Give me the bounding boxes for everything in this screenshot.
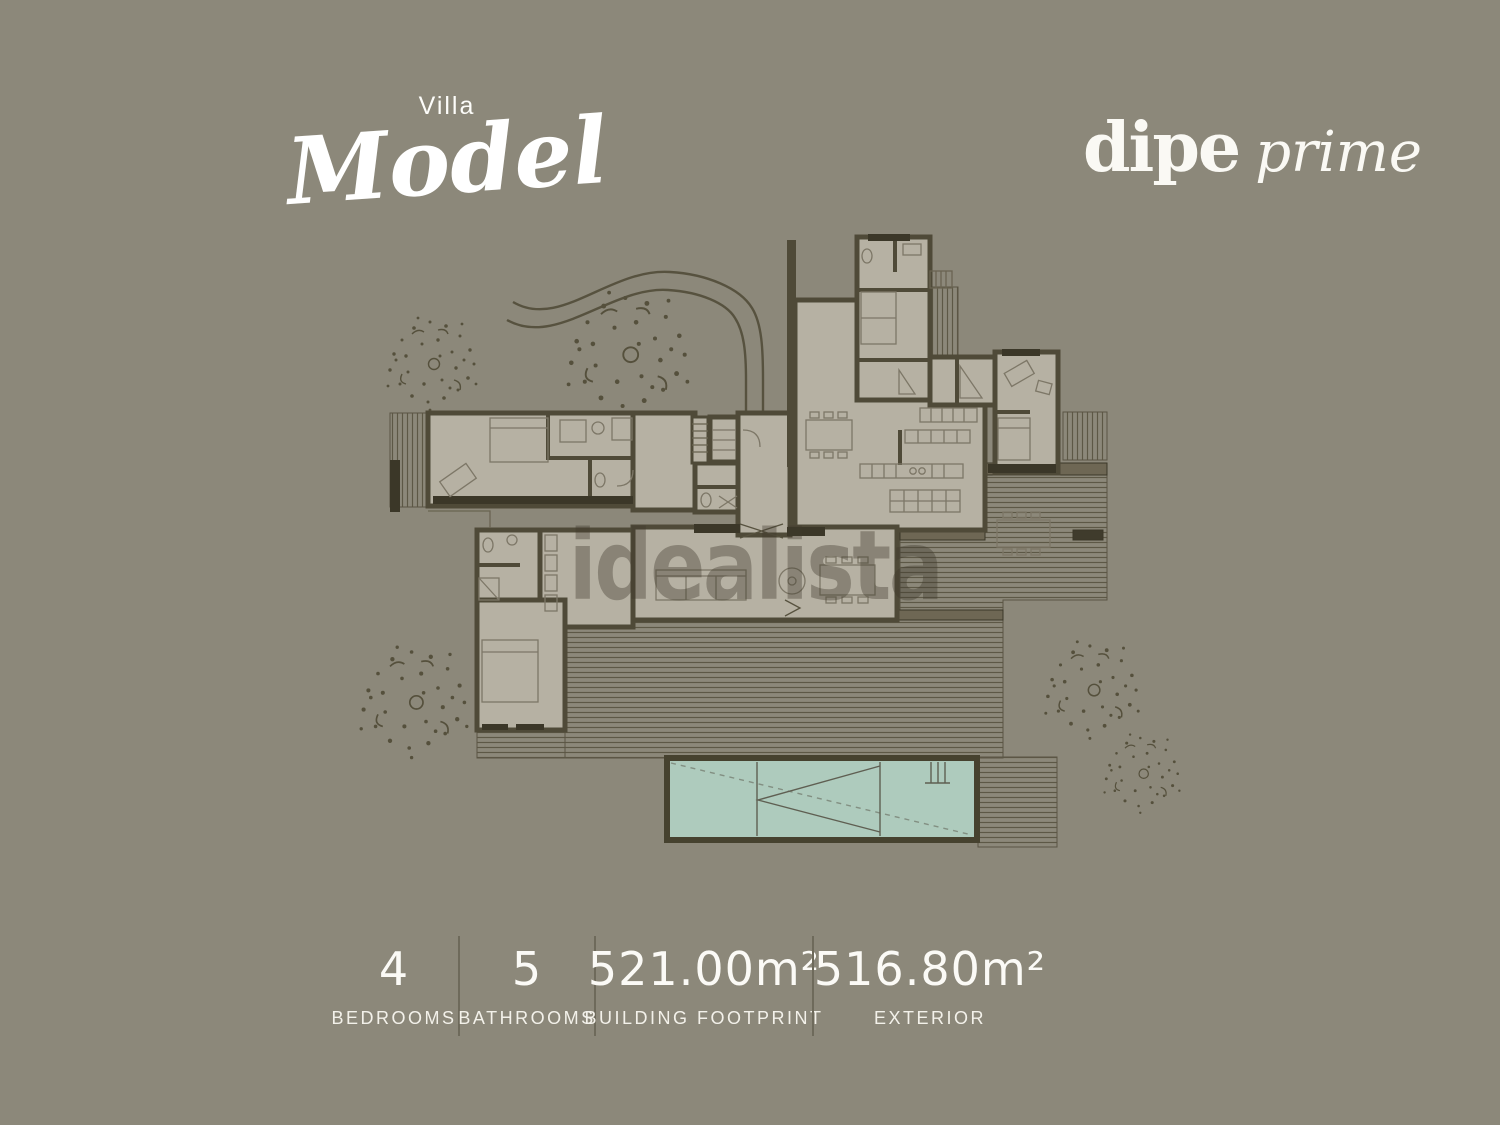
tree-icon: [387, 317, 478, 412]
brand-name: dipe: [1083, 108, 1239, 188]
room-bedroom-2: [477, 600, 565, 730]
bathrooms-value: 5: [512, 942, 542, 996]
stats-bar: 4 BEDROOMS 5 BATHROOMS 521.00m² BUILDING…: [330, 936, 1046, 1036]
room-hall: [633, 413, 695, 510]
villa-title-name: Model: [284, 104, 611, 218]
spine-wall: [787, 240, 796, 467]
stat-exterior: 516.80m² EXTERIOR: [812, 936, 1046, 1036]
brand-suffix: prime: [1255, 120, 1422, 185]
room-living: [633, 527, 897, 620]
footprint-value: 521.00m²: [588, 942, 820, 996]
exterior-label: EXTERIOR: [874, 1008, 986, 1029]
footprint-label: BUILDING FOOTPRINT: [585, 1008, 824, 1029]
stat-bathrooms: 5 BATHROOMS: [458, 936, 594, 1036]
bathrooms-label: BATHROOMS: [458, 1008, 595, 1029]
room-entry: [738, 413, 790, 535]
tree-icon: [360, 646, 469, 760]
tree-icon: [1103, 733, 1180, 814]
floor-plan-sheet: idealista Villa Model dipe prime 4 BEDRO…: [0, 0, 1500, 1125]
tree-icon: [567, 291, 690, 419]
stat-building-footprint: 521.00m² BUILDING FOOTPRINT: [594, 936, 812, 1036]
bedrooms-label: BEDROOMS: [331, 1008, 456, 1029]
pool: [667, 758, 977, 840]
tree-icon: [1044, 640, 1139, 740]
brand-logo: dipe prime: [1083, 108, 1422, 188]
villa-title: Villa Model: [286, 92, 607, 207]
bedrooms-value: 4: [379, 942, 409, 996]
deck-pool-side: [978, 757, 1057, 847]
room-bathroom-2: [477, 530, 540, 607]
stat-bedrooms: 4 BEDROOMS: [330, 936, 458, 1036]
deck-upper-right: [1063, 412, 1107, 460]
exterior-value: 516.80m²: [814, 942, 1046, 996]
